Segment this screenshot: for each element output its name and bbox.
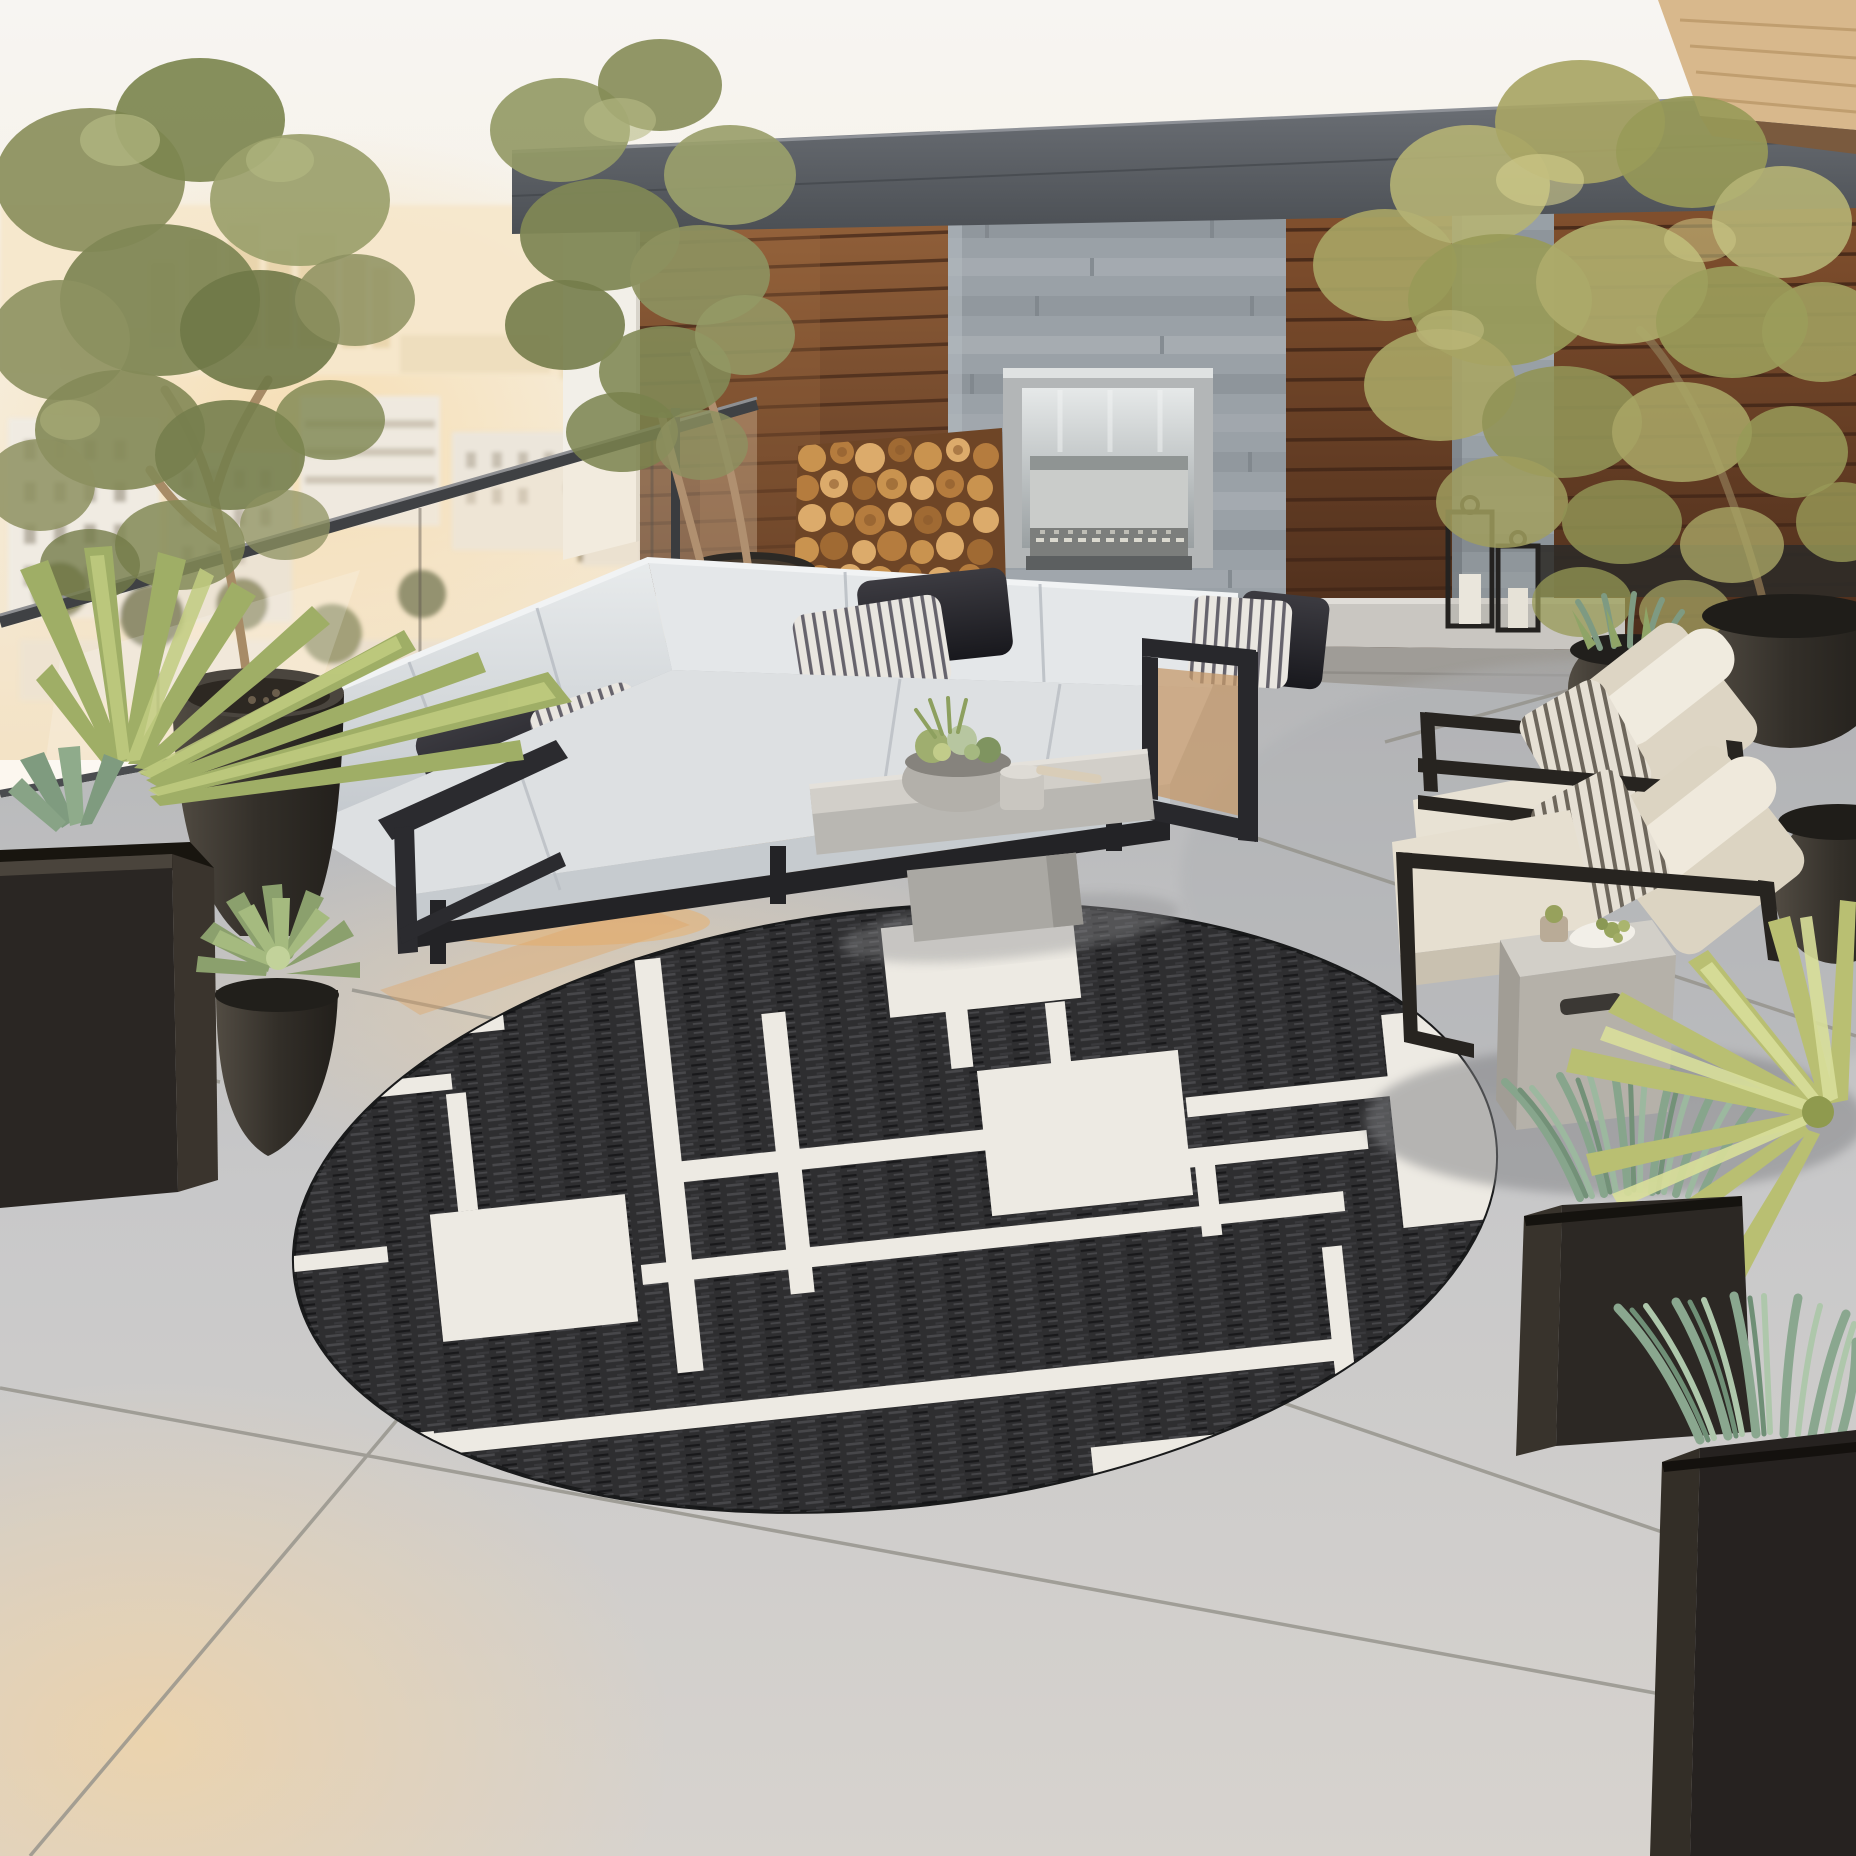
candle xyxy=(1508,588,1528,628)
patio-scene xyxy=(0,0,1856,1856)
cube-planter-lower xyxy=(1650,1430,1856,1856)
candle xyxy=(1459,574,1481,624)
square-planter xyxy=(0,842,218,1208)
rooftop-patio-photo xyxy=(0,0,1856,1856)
fireplace xyxy=(1003,368,1213,570)
